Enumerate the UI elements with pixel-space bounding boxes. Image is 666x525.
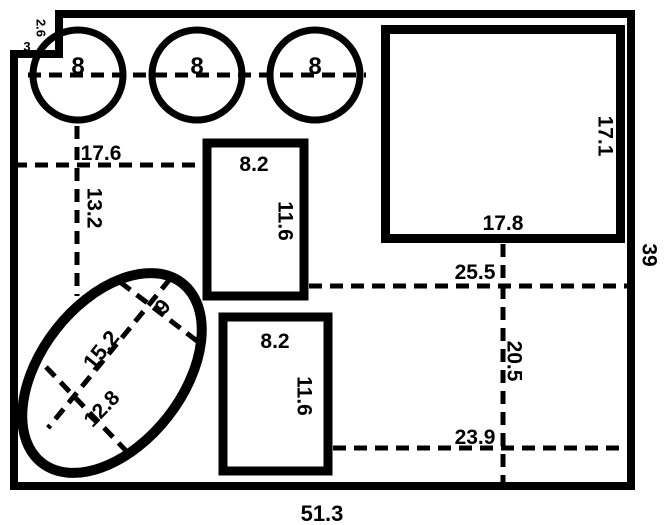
dim-label-13-2: 13.2 (83, 188, 106, 229)
dim-label-23-9: 23.9 (455, 426, 496, 449)
total-height-label: 39 (638, 243, 661, 266)
notch-height-label: 2.6 (34, 19, 49, 37)
dimension-drawing-canvas: 8 8 8 2.6 3 17.6 13.2 8.2 11.6 8.2 11.6 … (0, 0, 666, 525)
rect-top-height-label: 11.6 (274, 201, 297, 241)
circle-2-diameter-label: 8 (190, 53, 203, 80)
circle-3-diameter-label: 8 (308, 53, 321, 80)
big-rect-height-label: 17.1 (594, 116, 617, 157)
rect-bottom-width-label: 8.2 (260, 330, 289, 353)
dim-label-20-5: 20.5 (503, 341, 526, 382)
dim-label-17-6: 17.6 (81, 142, 122, 165)
notch-width-label: 3 (23, 39, 30, 54)
dim-label-25-5: 25.5 (455, 261, 496, 284)
rect-bottom-height-label: 11.6 (293, 376, 316, 416)
big-rect-width-label: 17.8 (483, 212, 524, 235)
circle-1-diameter-label: 8 (71, 53, 84, 80)
rect-top-width-label: 8.2 (239, 153, 268, 176)
floor-plan-diagram: 8 8 8 2.6 3 17.6 13.2 8.2 11.6 8.2 11.6 … (0, 0, 666, 525)
total-width-label: 51.3 (301, 501, 344, 525)
